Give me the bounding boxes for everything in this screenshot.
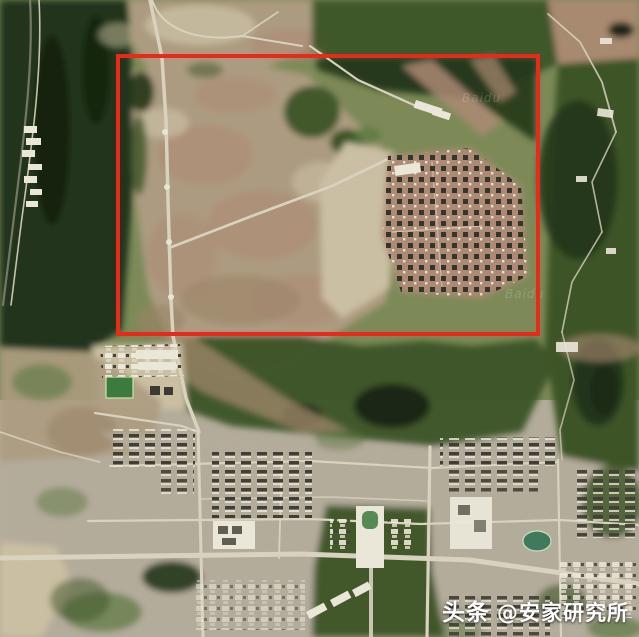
building-cluster xyxy=(195,580,305,630)
satellite-image: Baidu Baidu xyxy=(0,0,639,637)
pond xyxy=(354,384,430,428)
building-cluster xyxy=(212,450,312,518)
watermark-handle: @安家研究所 xyxy=(497,597,629,627)
white-complex xyxy=(213,521,255,549)
building-cluster xyxy=(576,468,636,538)
mall-complex xyxy=(450,497,492,549)
building-cluster xyxy=(158,468,194,494)
stadium-oval xyxy=(523,531,551,551)
watermark-brand: 头条 xyxy=(442,593,490,627)
building-cluster xyxy=(440,437,558,466)
publisher-watermark: 头条 @安家研究所 xyxy=(442,593,629,627)
screenshot: Baidu Baidu 头条 @安家研究所 xyxy=(0,0,639,637)
building-cluster xyxy=(443,470,538,492)
building-cluster xyxy=(107,429,195,467)
tile-watermark: Baidu xyxy=(462,91,501,105)
